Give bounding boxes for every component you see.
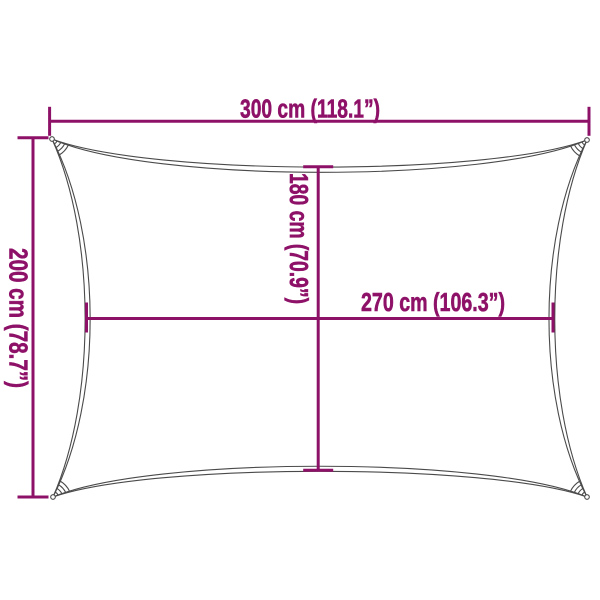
svg-text:300 cm (118.1”): 300 cm (118.1”) xyxy=(240,93,380,123)
svg-text:180 cm (70.9”): 180 cm (70.9”) xyxy=(284,173,314,304)
svg-text:200 cm (78.7”): 200 cm (78.7”) xyxy=(4,248,34,388)
svg-text:270 cm (106.3”): 270 cm (106.3”) xyxy=(361,287,505,317)
